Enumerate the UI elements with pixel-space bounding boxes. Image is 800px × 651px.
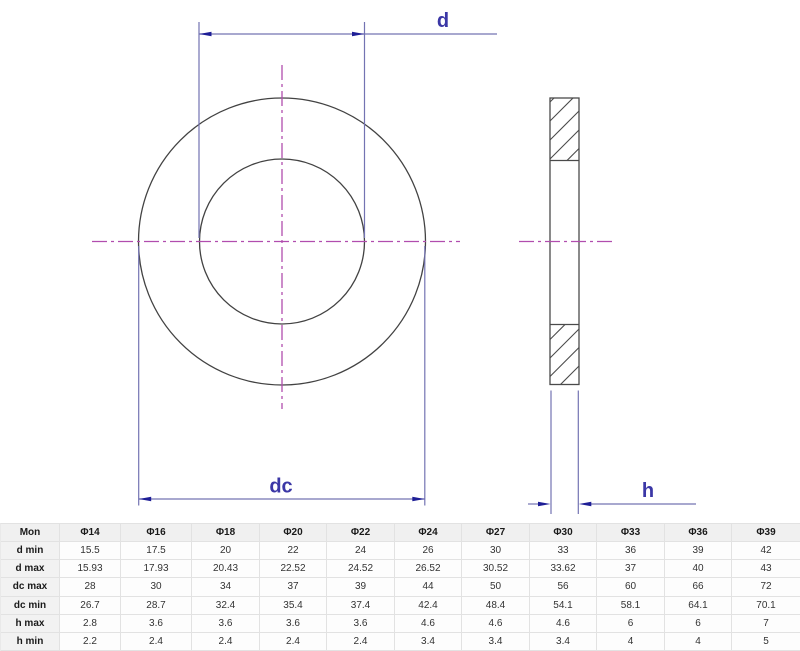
svg-text:h: h <box>642 480 654 502</box>
svg-text:d: d <box>437 10 449 32</box>
svg-text:dc: dc <box>269 476 292 498</box>
